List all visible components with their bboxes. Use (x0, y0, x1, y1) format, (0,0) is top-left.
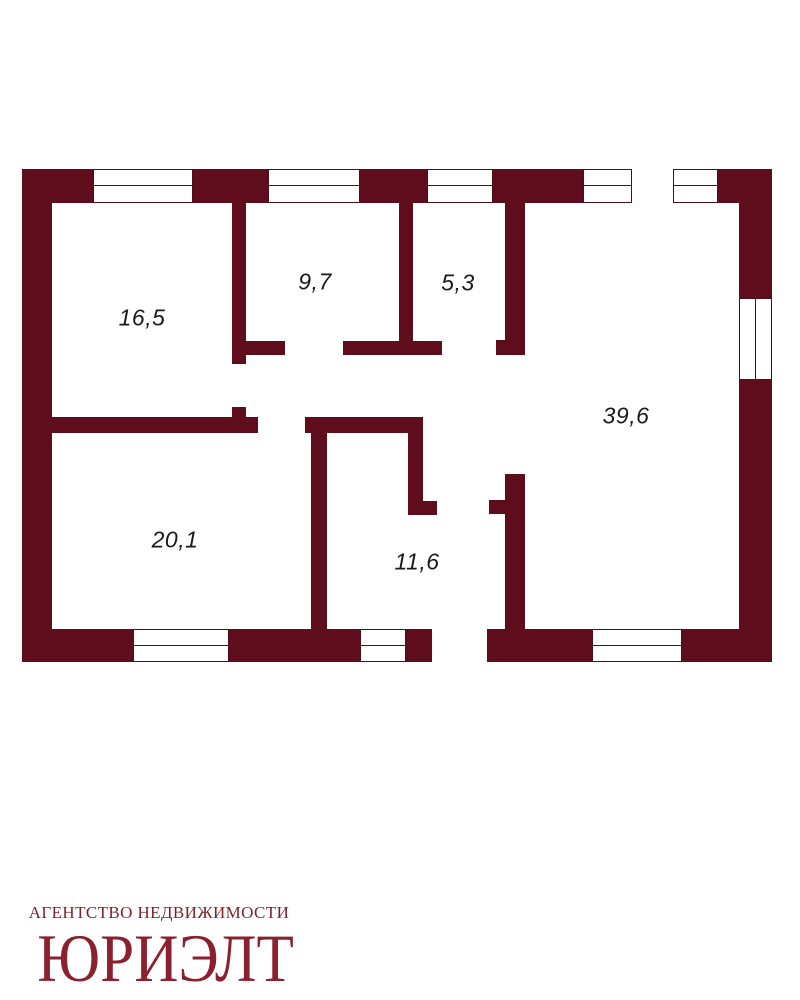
window-top-5 (673, 169, 718, 203)
wall-top-segment-2 (193, 169, 268, 203)
window-top-4 (583, 169, 632, 203)
wall-room5-top (50, 417, 258, 433)
wall-room3-divider-foot (496, 340, 525, 355)
wall-room4-left-lower (505, 474, 525, 629)
wall-top-segment-3 (360, 169, 427, 203)
wall-room1-room2-divider (232, 203, 246, 364)
wall-bottom-segment-1 (22, 629, 133, 662)
floor-plan-page: 16,5 9,7 5,3 39,6 20,1 11,6 АГЕНТСТВО НЕ… (0, 0, 800, 1000)
wall-room2-room3-divider (399, 203, 413, 341)
wall-room2-foot (246, 341, 285, 355)
wall-bottom-segment-5 (682, 629, 772, 662)
wall-room6-right-foot (408, 501, 437, 515)
window-bottom-2 (360, 629, 406, 662)
wall-bottom-segment-2 (229, 629, 360, 662)
wall-right-upper (739, 169, 772, 298)
window-top-3 (427, 169, 493, 203)
wall-room4-left-stub (489, 500, 505, 514)
room-area-label-9-7: 9,7 (298, 269, 331, 296)
wall-top-segment-4 (493, 169, 583, 203)
wall-room3-room4-divider (505, 203, 525, 340)
window-right (739, 298, 772, 380)
agency-logo-brand: ЮРИЭЛТ (37, 924, 294, 992)
agency-logo: АГЕНТСТВО НЕДВИЖИМОСТИ ЮРИЭЛТ (23, 903, 295, 992)
room-area-label-5-3: 5,3 (441, 270, 474, 297)
window-top-2 (268, 169, 360, 203)
wall-room6-top (305, 417, 423, 433)
room-area-label-39-6: 39,6 (603, 403, 650, 430)
wall-right-lower (739, 380, 772, 662)
wall-room6-right (408, 433, 423, 501)
window-bottom-1 (133, 629, 229, 662)
wall-room5-room6-divider (311, 433, 327, 629)
window-top-1 (93, 169, 193, 203)
wall-room2-bottom (343, 341, 442, 355)
wall-left-exterior (22, 169, 52, 662)
wall-bottom-segment-3 (406, 629, 432, 662)
wall-bottom-segment-4 (487, 629, 592, 662)
room-area-label-16-5: 16,5 (119, 305, 166, 332)
room-area-label-20-1: 20,1 (152, 527, 199, 554)
window-bottom-3 (592, 629, 682, 662)
room-area-label-11-6: 11,6 (394, 549, 439, 576)
